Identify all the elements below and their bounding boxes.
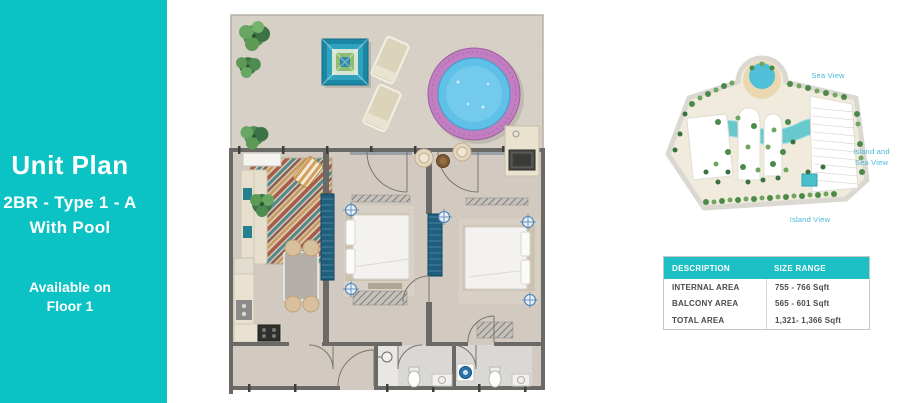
stove: [258, 325, 280, 341]
sofa-pillow: [243, 226, 252, 238]
bed-duvet: [465, 227, 527, 289]
pillow: [346, 220, 355, 245]
island-and-sea-view-label: Island and Sea View: [843, 146, 900, 168]
kitchen-sink: [236, 300, 252, 320]
row-description: BALCONY AREA: [664, 299, 766, 308]
island-view-label: Island View: [780, 214, 840, 225]
row-description: TOTAL AREA: [664, 316, 766, 325]
area-table: DESCRIPTION SIZE RANGE INTERNAL AREA 755…: [663, 256, 870, 330]
table-row: INTERNAL AREA 755 - 766 Sqft: [664, 279, 869, 296]
dining-table: [284, 252, 318, 300]
table-row: TOTAL AREA 1,321- 1,366 Sqft: [664, 312, 869, 329]
table-row: BALCONY AREA 565 - 601 Sqft: [664, 296, 869, 313]
wardrobe: [353, 291, 407, 305]
row-description: INTERNAL AREA: [664, 283, 766, 292]
area-table-header: DESCRIPTION SIZE RANGE: [664, 257, 869, 279]
unit-info-panel: Unit Plan 2BR - Type 1 - A With Pool Ava…: [0, 0, 167, 403]
sea-view-label: Sea View: [800, 70, 856, 81]
pillow: [521, 232, 530, 256]
unit-plan-page: Unit Plan 2BR - Type 1 - A With Pool Ava…: [0, 0, 900, 403]
header-size-range: SIZE RANGE: [766, 264, 869, 273]
wardrobe-blue: [321, 194, 334, 280]
bed-bench: [368, 283, 402, 289]
wardrobe-blue: [428, 214, 442, 276]
resort-pool: [802, 174, 817, 186]
header-description: DESCRIPTION: [664, 264, 766, 273]
canopy-daybed: [322, 39, 371, 88]
curtain: [350, 152, 412, 155]
availability-label: Available on Floor 1: [0, 278, 140, 316]
floor-plan-image: [228, 12, 546, 397]
availability-line-2: Floor 1: [0, 297, 140, 316]
wardrobe: [477, 322, 513, 338]
pillow: [346, 249, 355, 274]
row-size-range: 755 - 766 Sqft: [766, 279, 869, 296]
row-size-range: 1,321- 1,366 Sqft: [766, 312, 869, 329]
page-title: Unit Plan: [0, 150, 140, 181]
building-left: [687, 114, 733, 180]
unit-feature-label: With Pool: [0, 218, 140, 238]
row-size-range: 565 - 601 Sqft: [766, 296, 869, 313]
shower-zone: [376, 345, 398, 387]
availability-line-1: Available on: [0, 278, 140, 297]
outdoor-kitchen: [505, 126, 539, 176]
bed-duvet: [353, 215, 409, 279]
pillow: [521, 260, 530, 284]
unit-type-label: 2BR - Type 1 - A: [0, 193, 140, 213]
tv-console: [243, 153, 281, 166]
